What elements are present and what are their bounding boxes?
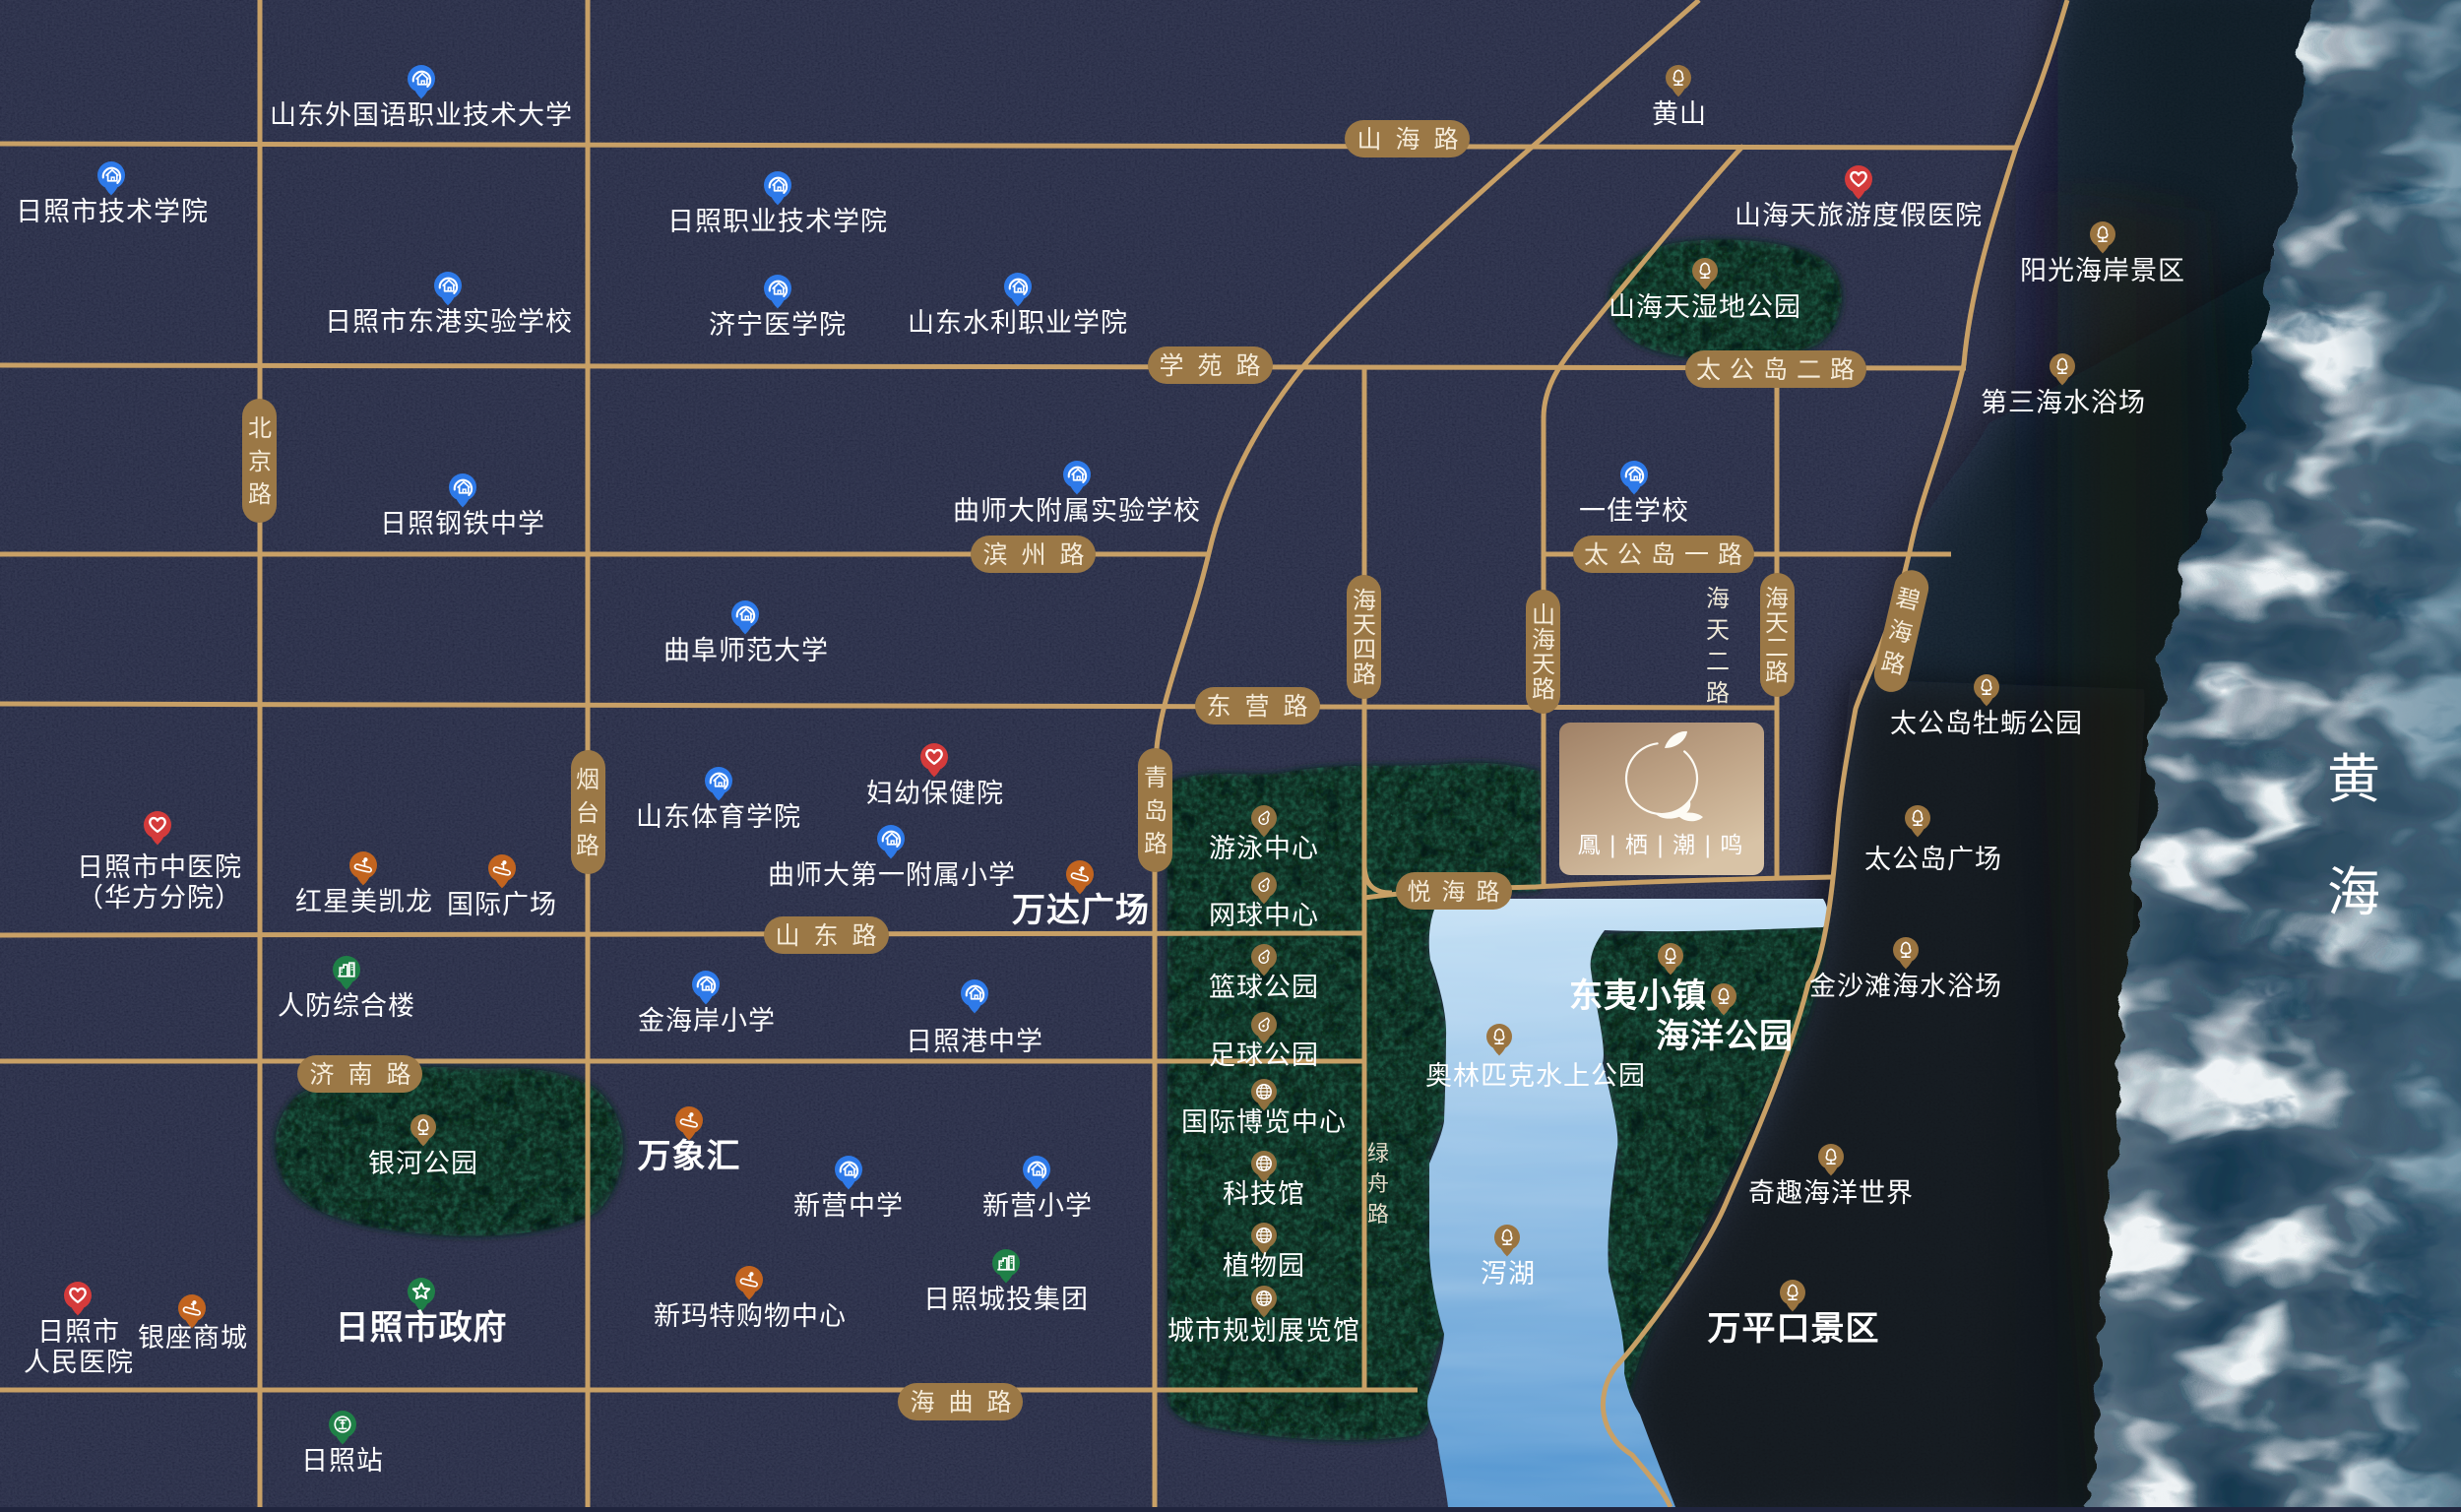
svg-text:银河公园: 银河公园 [368, 1149, 478, 1178]
svg-text:路: 路 [1367, 1202, 1389, 1227]
svg-text:太公岛广场: 太公岛广场 [1864, 845, 2002, 874]
svg-text:青: 青 [1144, 765, 1167, 791]
svg-text:二: 二 [1765, 636, 1789, 661]
svg-text:海: 海 [2327, 863, 2380, 922]
svg-text:植物园: 植物园 [1223, 1251, 1305, 1281]
svg-text:游泳中心: 游泳中心 [1209, 834, 1319, 863]
svg-text:红星美凯龙: 红星美凯龙 [295, 887, 433, 916]
svg-text:学苑路: 学苑路 [1159, 352, 1274, 380]
svg-text:金海岸小学: 金海岸小学 [638, 1006, 776, 1036]
svg-text:烟: 烟 [576, 767, 599, 793]
svg-text:海: 海 [1706, 586, 1730, 612]
svg-text:日照城投集团: 日照城投集团 [923, 1285, 1089, 1314]
svg-text:北: 北 [248, 415, 272, 442]
svg-text:日照职业技术学院: 日照职业技术学院 [667, 207, 888, 236]
svg-text:山东体育学院: 山东体育学院 [636, 802, 801, 832]
svg-text:天: 天 [1353, 613, 1376, 639]
svg-text:天: 天 [1706, 618, 1730, 644]
svg-text:科技馆: 科技馆 [1223, 1179, 1305, 1209]
svg-text:奇趣海洋世界: 奇趣海洋世界 [1748, 1178, 1914, 1208]
svg-text:滨州路: 滨州路 [982, 541, 1098, 569]
svg-text:山东水利职业学院: 山东水利职业学院 [908, 308, 1128, 338]
svg-text:四: 四 [1353, 638, 1376, 663]
svg-text:海: 海 [1353, 588, 1376, 614]
svg-text:路: 路 [1765, 660, 1789, 686]
svg-text:绿: 绿 [1367, 1141, 1389, 1165]
svg-text:奥林匹克水上公园: 奥林匹克水上公园 [1425, 1061, 1646, 1091]
svg-text:山: 山 [1532, 602, 1555, 629]
svg-text:日照市: 日照市 [37, 1317, 120, 1347]
svg-text:太公岛一路: 太公岛一路 [1584, 541, 1751, 569]
svg-text:山东路: 山东路 [775, 922, 890, 950]
svg-text:妇幼保健院: 妇幼保健院 [866, 779, 1004, 808]
svg-text:岛: 岛 [1144, 798, 1167, 825]
svg-text:一佳学校: 一佳学校 [1579, 496, 1689, 526]
svg-text:济南路: 济南路 [309, 1061, 424, 1089]
svg-text:山海路: 山海路 [1357, 126, 1472, 154]
svg-text:日照钢铁中学: 日照钢铁中学 [380, 509, 545, 538]
svg-text:天: 天 [1765, 611, 1789, 637]
svg-text:国际博览中心: 国际博览中心 [1181, 1107, 1347, 1137]
svg-text:济宁医学院: 济宁医学院 [709, 310, 847, 340]
svg-text:二: 二 [1706, 650, 1730, 675]
svg-text:阳光海岸景区: 阳光海岸景区 [2020, 256, 2185, 285]
svg-text:路: 路 [1353, 661, 1376, 688]
svg-text:太公岛二路: 太公岛二路 [1696, 356, 1863, 384]
svg-text:万平口景区: 万平口景区 [1708, 1310, 1880, 1348]
svg-text:黄: 黄 [2327, 750, 2380, 809]
svg-text:日照站: 日照站 [301, 1446, 384, 1476]
svg-text:国际广场: 国际广场 [447, 890, 557, 919]
svg-text:鳳❘栖❘潮❘鸣: 鳳❘栖❘潮❘鸣 [1578, 832, 1746, 858]
svg-text:太公岛牡蛎公园: 太公岛牡蛎公园 [1890, 709, 2083, 738]
svg-text:京: 京 [248, 449, 272, 475]
svg-text:第三海水浴场: 第三海水浴场 [1981, 388, 2146, 417]
svg-text:曲阜师范大学: 曲阜师范大学 [663, 636, 829, 665]
svg-text:曲师大附属实验学校: 曲师大附属实验学校 [953, 496, 1201, 526]
svg-text:舟: 舟 [1367, 1171, 1389, 1196]
svg-text:路: 路 [1532, 676, 1555, 703]
svg-text:台: 台 [576, 800, 599, 827]
svg-text:日照市东港实验学校: 日照市东港实验学校 [325, 307, 573, 337]
svg-text:新营中学: 新营中学 [793, 1191, 904, 1221]
svg-text:网球中心: 网球中心 [1209, 901, 1319, 930]
svg-text:城市规划展览馆: 城市规划展览馆 [1167, 1316, 1360, 1346]
svg-text:路: 路 [1706, 680, 1730, 707]
svg-text:日照港中学: 日照港中学 [906, 1027, 1043, 1056]
svg-text:日照市技术学院: 日照市技术学院 [16, 197, 209, 226]
svg-text:人防综合楼: 人防综合楼 [278, 991, 415, 1021]
svg-text:万象汇: 万象汇 [638, 1138, 741, 1175]
svg-text:海曲路: 海曲路 [910, 1389, 1025, 1417]
svg-text:日照市政府: 日照市政府 [336, 1308, 508, 1347]
svg-text:新玛特购物中心: 新玛特购物中心 [654, 1301, 847, 1331]
svg-text:海: 海 [1532, 627, 1555, 654]
svg-text:银座商城: 银座商城 [138, 1323, 248, 1353]
svg-text:足球公园: 足球公园 [1209, 1040, 1319, 1070]
svg-text:天: 天 [1532, 653, 1555, 678]
svg-text:黄山: 黄山 [1652, 99, 1707, 129]
svg-text:山海天旅游度假医院: 山海天旅游度假医院 [1735, 201, 1983, 230]
svg-text:（华方分院）: （华方分院） [77, 883, 242, 913]
svg-text:人民医院: 人民医院 [24, 1348, 134, 1377]
svg-text:海洋公园: 海洋公园 [1656, 1018, 1794, 1055]
svg-text:金沙滩海水浴场: 金沙滩海水浴场 [1809, 972, 2002, 1001]
svg-text:日照市中医院: 日照市中医院 [77, 852, 242, 882]
svg-text:东夷小镇: 东夷小镇 [1569, 976, 1707, 1015]
svg-text:曲师大第一附属小学: 曲师大第一附属小学 [768, 860, 1016, 890]
svg-text:万达广场: 万达广场 [1012, 892, 1150, 929]
svg-text:山东外国语职业技术大学: 山东外国语职业技术大学 [270, 100, 573, 130]
svg-text:路: 路 [1144, 831, 1167, 857]
svg-text:海: 海 [1765, 586, 1789, 612]
svg-text:东营路: 东营路 [1206, 693, 1321, 721]
svg-text:山海天湿地公园: 山海天湿地公园 [1609, 292, 1801, 322]
svg-text:新营小学: 新营小学 [982, 1191, 1093, 1221]
svg-text:路: 路 [576, 833, 599, 859]
svg-text:路: 路 [248, 481, 272, 508]
svg-text:篮球公园: 篮球公园 [1209, 973, 1319, 1002]
svg-text:悦海路: 悦海路 [1408, 879, 1511, 906]
svg-text:泻湖: 泻湖 [1481, 1259, 1536, 1289]
